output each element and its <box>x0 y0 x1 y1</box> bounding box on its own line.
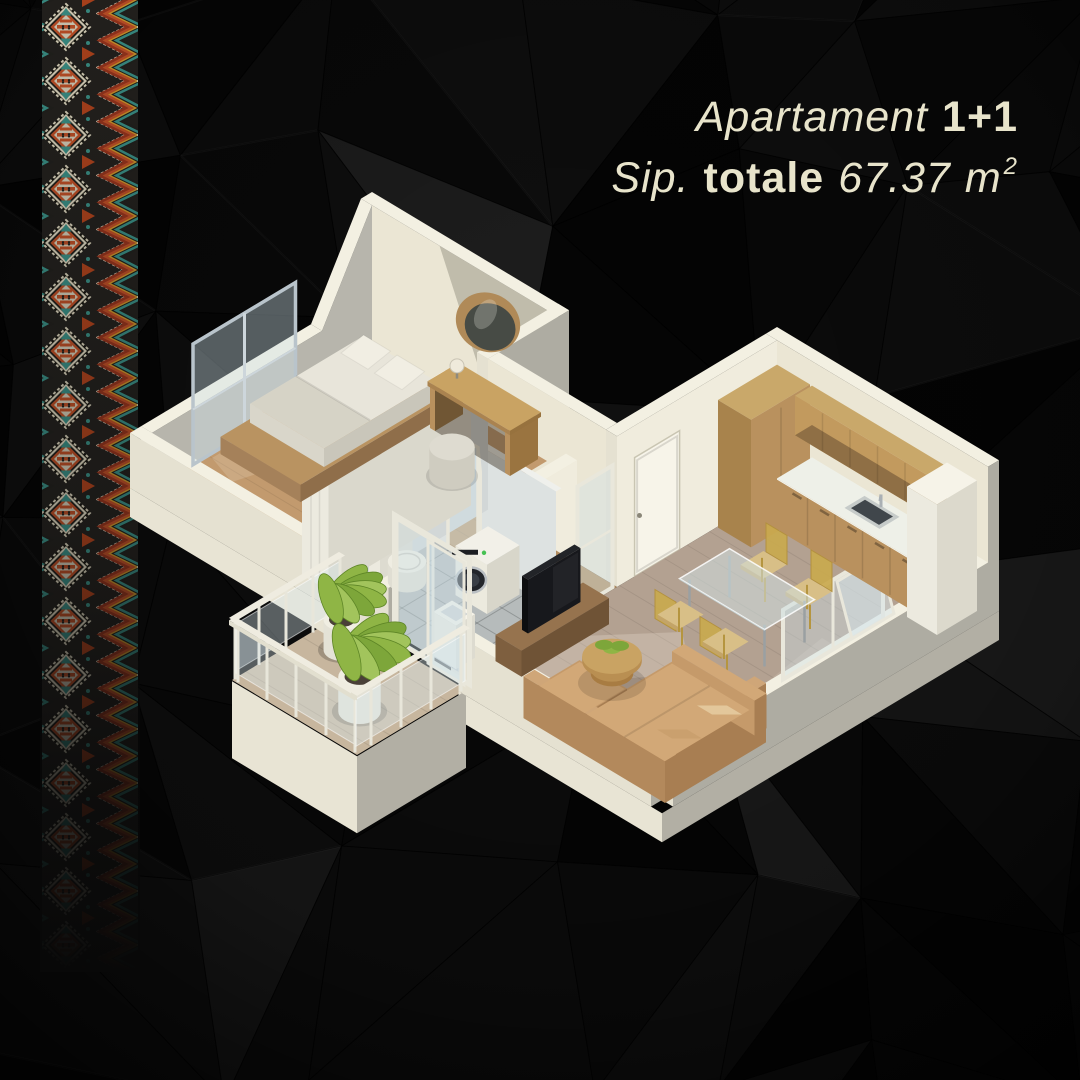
poster: Apartament1+1 Sip.totale67.37m2 <box>0 0 1080 1080</box>
apartment-type-label: Apartament <box>696 93 928 141</box>
area-label: totale <box>704 154 825 202</box>
area-value: 67.37 <box>838 154 951 202</box>
apartment-area-line: Sip.totale67.37m2 <box>611 142 1018 203</box>
area-label-prefix: Sip. <box>611 154 689 202</box>
apartment-type-value: 1+1 <box>942 93 1018 141</box>
title-block: Apartament1+1 Sip.totale67.37m2 <box>611 92 1018 203</box>
coffee-table <box>578 639 646 701</box>
pouf <box>426 434 478 491</box>
apartment-title-line: Apartament1+1 <box>611 92 1018 142</box>
area-unit: m <box>965 154 1002 202</box>
area-unit-sup: 2 <box>1004 153 1018 180</box>
